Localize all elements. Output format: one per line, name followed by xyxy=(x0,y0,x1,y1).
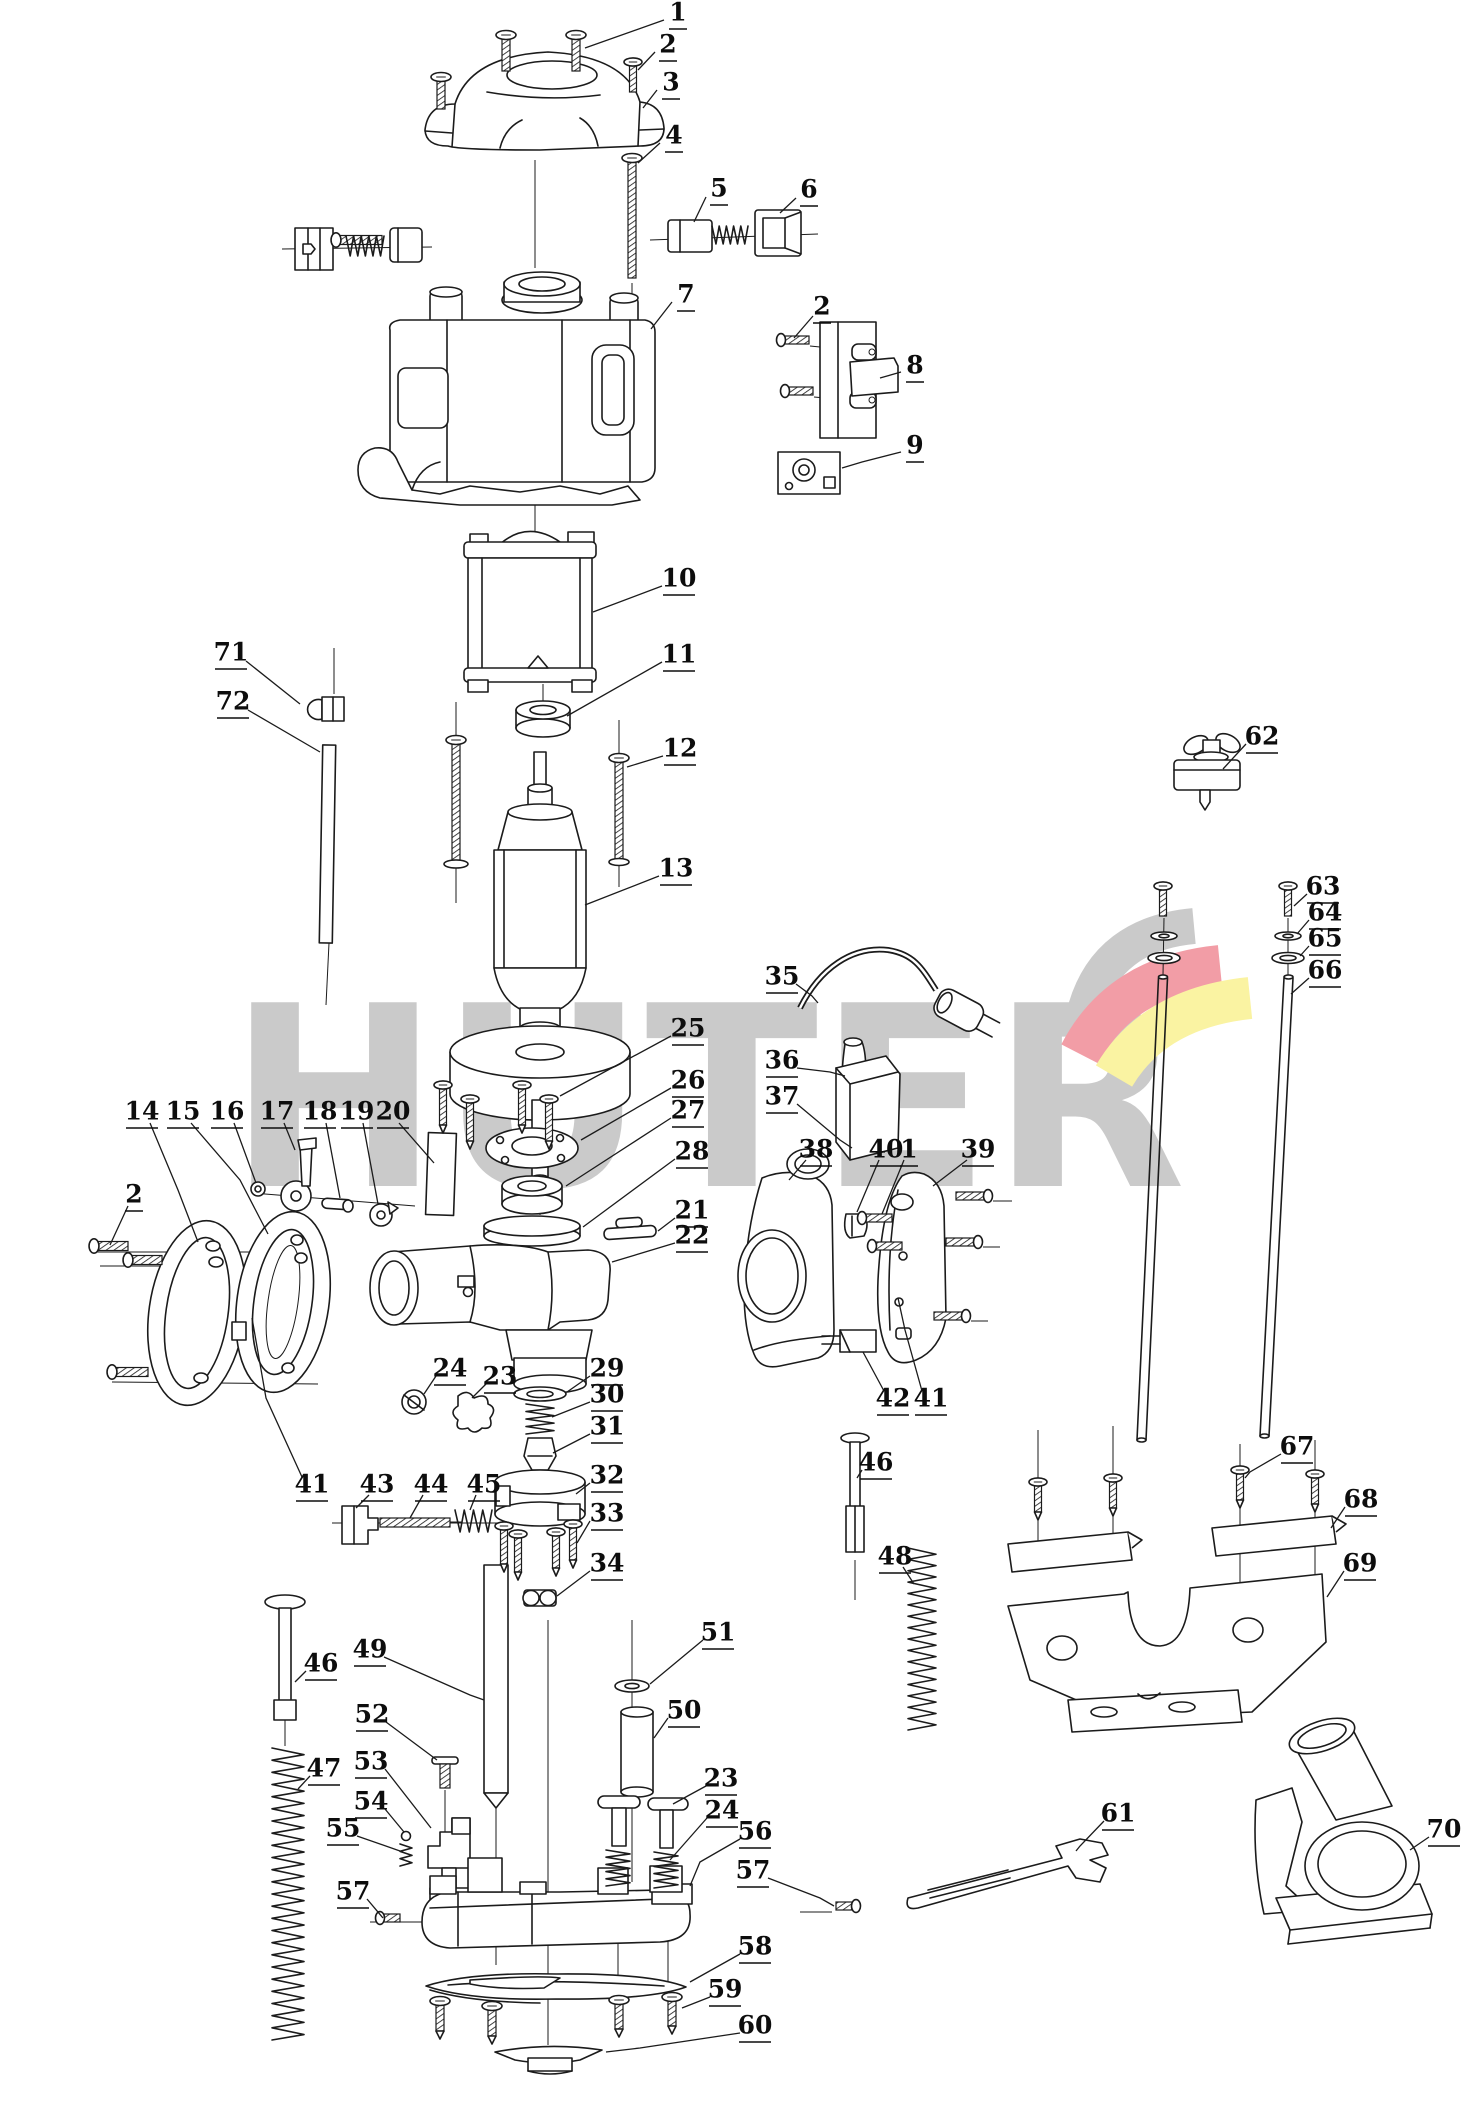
svg-text:70: 70 xyxy=(1427,1815,1462,1844)
svg-text:13: 13 xyxy=(659,854,694,883)
svg-text:1: 1 xyxy=(900,1135,917,1164)
svg-text:42: 42 xyxy=(876,1384,911,1413)
part-label-31: 31 xyxy=(553,1412,624,1454)
brand-watermark: HÜTER xyxy=(228,926,1250,1246)
svg-text:12: 12 xyxy=(663,734,698,763)
stator-10 xyxy=(464,531,596,692)
bearing-11 xyxy=(516,701,570,737)
svg-text:41: 41 xyxy=(914,1384,949,1413)
part-label-2: 2 xyxy=(638,30,677,71)
deflector-60 xyxy=(495,2046,602,2074)
strip-20 xyxy=(426,1133,457,1216)
svg-text:49: 49 xyxy=(353,1635,388,1664)
nut-24a xyxy=(402,1390,426,1414)
svg-text:60: 60 xyxy=(738,2011,773,2040)
svg-text:20: 20 xyxy=(376,1097,411,1126)
flange-26 xyxy=(486,1128,578,1168)
svg-text:45: 45 xyxy=(467,1470,502,1499)
svg-text:69: 69 xyxy=(1343,1549,1378,1578)
svg-text:65: 65 xyxy=(1308,924,1343,953)
part-label-60: 60 xyxy=(606,2011,772,2053)
svg-text:66: 66 xyxy=(1308,956,1343,985)
disc-28 xyxy=(484,1216,580,1246)
plate-9 xyxy=(778,452,840,494)
svg-text:56: 56 xyxy=(738,1817,773,1846)
svg-text:24: 24 xyxy=(705,1796,740,1825)
part-label-55: 55 xyxy=(326,1814,400,1852)
svg-text:9: 9 xyxy=(906,431,923,460)
svg-text:57: 57 xyxy=(336,1877,371,1906)
part-label-72: 72 xyxy=(216,687,320,753)
svg-text:36: 36 xyxy=(765,1046,800,1075)
svg-text:16: 16 xyxy=(210,1097,245,1126)
diagram-canvas: HÜTER xyxy=(0,0,1483,2112)
knob-43 xyxy=(342,1506,378,1544)
collet-31 xyxy=(524,1438,556,1470)
brush-5 xyxy=(668,220,712,252)
svg-text:31: 31 xyxy=(590,1412,625,1441)
svg-text:29: 29 xyxy=(590,1354,625,1383)
top-cover xyxy=(425,52,664,150)
part-label-69: 69 xyxy=(1327,1549,1377,1598)
armature-13 xyxy=(494,752,586,1034)
svg-text:19: 19 xyxy=(340,1097,375,1126)
part-label-46: 46 xyxy=(857,1448,893,1480)
svg-text:38: 38 xyxy=(799,1135,834,1164)
svg-text:46: 46 xyxy=(859,1448,894,1477)
svg-text:52: 52 xyxy=(355,1700,390,1729)
rod-44 xyxy=(380,1518,462,1527)
svg-text:62: 62 xyxy=(1245,722,1280,751)
svg-text:30: 30 xyxy=(590,1380,625,1409)
svg-text:6: 6 xyxy=(800,175,817,204)
part-label-32: 32 xyxy=(576,1461,624,1495)
svg-text:64: 64 xyxy=(1308,898,1343,927)
svg-text:39: 39 xyxy=(961,1135,996,1164)
svg-text:63: 63 xyxy=(1306,872,1341,901)
svg-text:33: 33 xyxy=(590,1499,625,1528)
svg-text:59: 59 xyxy=(708,1975,743,2004)
svg-text:51: 51 xyxy=(701,1618,736,1647)
svg-text:32: 32 xyxy=(590,1461,625,1490)
bearing-27 xyxy=(502,1176,562,1214)
svg-text:15: 15 xyxy=(166,1097,201,1126)
brush-holder-6 xyxy=(755,210,801,256)
svg-text:18: 18 xyxy=(303,1097,338,1126)
part-label-57: 57 xyxy=(336,1877,383,1919)
svg-text:23: 23 xyxy=(704,1764,739,1793)
svg-text:7: 7 xyxy=(677,280,694,309)
rod-49 xyxy=(484,1565,508,1808)
part-label-7: 7 xyxy=(651,280,695,330)
svg-text:71: 71 xyxy=(214,638,249,667)
svg-text:48: 48 xyxy=(878,1542,913,1571)
svg-text:53: 53 xyxy=(354,1747,389,1776)
svg-text:50: 50 xyxy=(667,1696,702,1725)
part-label-49: 49 xyxy=(353,1635,484,1701)
svg-text:2: 2 xyxy=(125,1180,142,1209)
sleeve-34 xyxy=(523,1590,556,1606)
base-32 xyxy=(495,1470,585,1526)
svg-text:55: 55 xyxy=(326,1814,361,1843)
v-bracket-69 xyxy=(1008,1574,1326,1732)
part-label-57: 57 xyxy=(736,1856,834,1907)
svg-text:14: 14 xyxy=(125,1097,160,1126)
part-label-24: 24 xyxy=(424,1354,467,1395)
part-label-12: 12 xyxy=(627,734,697,768)
svg-text:27: 27 xyxy=(671,1096,706,1125)
part-label-67: 67 xyxy=(1245,1432,1314,1479)
svg-text:17: 17 xyxy=(260,1097,295,1126)
part-label-5: 5 xyxy=(694,174,728,223)
part-label-23: 23 xyxy=(472,1362,517,1399)
part-label-48: 48 xyxy=(878,1542,914,1585)
svg-text:1: 1 xyxy=(669,0,686,27)
part-label-2: 2 xyxy=(110,1180,143,1246)
svg-text:24: 24 xyxy=(433,1354,468,1383)
cylinder-50 xyxy=(621,1707,653,1797)
part-label-70: 70 xyxy=(1410,1815,1461,1851)
clamp-bars-68 xyxy=(1008,1516,1346,1572)
svg-text:22: 22 xyxy=(675,1221,710,1250)
svg-text:43: 43 xyxy=(360,1470,395,1499)
svg-text:28: 28 xyxy=(675,1137,710,1166)
svg-text:23: 23 xyxy=(483,1362,518,1391)
part-label-34: 34 xyxy=(557,1549,624,1597)
part-label-6: 6 xyxy=(780,175,818,214)
svg-text:57: 57 xyxy=(736,1856,771,1885)
dust-hood-70 xyxy=(1255,1711,1432,1944)
svg-text:26: 26 xyxy=(671,1066,706,1095)
wing-block-62 xyxy=(1174,730,1243,810)
sole-plate-58 xyxy=(426,1974,686,2003)
svg-text:25: 25 xyxy=(671,1014,706,1043)
svg-text:44: 44 xyxy=(414,1470,449,1499)
washer-29 xyxy=(514,1387,566,1401)
svg-text:3: 3 xyxy=(662,68,679,97)
part-label-59: 59 xyxy=(682,1975,742,2009)
part-label-47: 47 xyxy=(298,1754,341,1790)
svg-text:41: 41 xyxy=(295,1470,330,1499)
svg-text:72: 72 xyxy=(216,687,251,716)
switch-plate-8 xyxy=(820,322,898,438)
part-label-13: 13 xyxy=(585,854,693,906)
part-label-51: 51 xyxy=(650,1618,735,1685)
svg-text:35: 35 xyxy=(765,962,800,991)
svg-text:5: 5 xyxy=(710,174,727,203)
svg-text:8: 8 xyxy=(906,351,923,380)
svg-text:34: 34 xyxy=(590,1549,625,1578)
motor-housing-7 xyxy=(358,272,655,505)
svg-text:47: 47 xyxy=(307,1754,342,1783)
screw-52 xyxy=(432,1757,458,1788)
svg-text:4: 4 xyxy=(665,121,682,150)
svg-text:11: 11 xyxy=(662,640,697,669)
clip-71 xyxy=(308,697,344,721)
part-label-43: 43 xyxy=(356,1470,394,1509)
svg-text:10: 10 xyxy=(662,564,697,593)
svg-text:46: 46 xyxy=(304,1649,339,1678)
svg-text:2: 2 xyxy=(659,30,676,59)
pin-46a xyxy=(265,1595,305,1746)
part-label-54: 54 xyxy=(354,1787,404,1833)
part-label-50: 50 xyxy=(654,1696,701,1739)
part-label-10: 10 xyxy=(593,564,696,613)
svg-text:67: 67 xyxy=(1280,1432,1315,1461)
svg-text:61: 61 xyxy=(1101,1799,1136,1828)
exploded-parts-diagram: HÜTER xyxy=(0,0,1483,2112)
part-label-46: 46 xyxy=(295,1649,338,1683)
part-label-3: 3 xyxy=(643,68,680,109)
svg-text:40: 40 xyxy=(869,1135,904,1164)
svg-text:37: 37 xyxy=(765,1082,800,1111)
svg-text:54: 54 xyxy=(354,1787,389,1816)
ring-54 xyxy=(402,1832,411,1841)
svg-text:2: 2 xyxy=(813,292,830,321)
svg-text:68: 68 xyxy=(1344,1485,1379,1514)
cross-knob-23a xyxy=(453,1392,494,1432)
part-label-44: 44 xyxy=(410,1470,448,1519)
washer-51 xyxy=(615,1680,649,1708)
part-label-65: 65 xyxy=(1300,924,1342,957)
svg-text:58: 58 xyxy=(738,1932,773,1961)
